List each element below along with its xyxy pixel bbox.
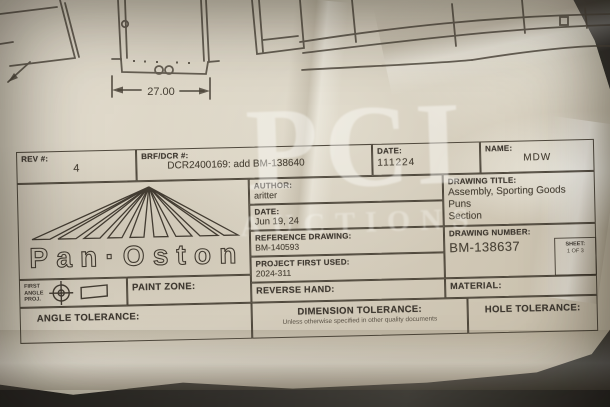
material-label: MATERIAL: bbox=[450, 278, 592, 291]
title-block: REV #: 4 BRF/DCR #: DCR2400169: add BM-1… bbox=[16, 139, 598, 344]
hole-tolerance-label: HOLE TOLERANCE: bbox=[472, 298, 592, 316]
sheet-cell: SHEET: 1 OF 3 bbox=[554, 237, 597, 276]
date-cell: DATE: 111224 bbox=[372, 141, 481, 175]
dimension-label: 27.00 bbox=[147, 86, 175, 98]
dot bbox=[156, 61, 158, 63]
rev-value: 4 bbox=[21, 162, 131, 178]
brf-dcr-cell: BRF/DCR #: DCR2400169: add BM-138640 bbox=[136, 144, 373, 181]
drawing-outline bbox=[472, 46, 610, 60]
angle-tolerance-cell: ANGLE TOLERANCE: bbox=[20, 303, 253, 344]
drawing-detail-square bbox=[560, 17, 568, 25]
hole-tolerance-cell: HOLE TOLERANCE: bbox=[467, 295, 598, 334]
date-label: DATE: bbox=[377, 145, 475, 156]
first-angle-projection-icon bbox=[45, 280, 112, 305]
drawing-outline bbox=[118, 0, 121, 60]
drawing-title-line2: Section bbox=[448, 208, 590, 223]
reverse-hand-label: REVERSE HAND: bbox=[256, 281, 440, 295]
name-cell: NAME: MDW bbox=[480, 139, 595, 174]
date-value: 111224 bbox=[377, 156, 475, 170]
first-angle-text: FIRST ANGLE PROJ. bbox=[24, 283, 44, 304]
fan-rays-icon bbox=[31, 185, 238, 240]
drawing-outline bbox=[0, 42, 13, 44]
angle-tolerance-label: ANGLE TOLERANCE: bbox=[25, 306, 247, 325]
sheet-label: SHEET: bbox=[555, 241, 595, 248]
drawing-outline bbox=[302, 60, 472, 70]
dot bbox=[176, 62, 178, 64]
drawing-outline bbox=[125, 0, 127, 58]
drawing-outline bbox=[352, 0, 356, 42]
brand-text: Pan·Oston bbox=[29, 238, 240, 274]
drawing-outline bbox=[452, 4, 456, 46]
dot bbox=[133, 60, 135, 62]
drawing-views-fragment: 27.00 bbox=[0, 0, 610, 150]
logo-cell: Pan·Oston bbox=[17, 179, 251, 280]
pan-oston-logo: Pan·Oston bbox=[21, 183, 247, 276]
drawing-outline bbox=[206, 0, 209, 62]
rev-cell: REV #: 4 bbox=[16, 149, 137, 184]
dot bbox=[188, 62, 190, 64]
dimension-tolerance-cell: DIMENSION TOLERANCE: Unless otherwise sp… bbox=[251, 298, 468, 339]
sheet-value: 1 OF 3 bbox=[555, 248, 595, 255]
paint-zone-cell: PAINT ZONE: bbox=[127, 275, 252, 306]
drawing-outline bbox=[0, 7, 57, 14]
drawing-title-line1: Assembly, Sporting Goods Puns bbox=[448, 184, 591, 211]
drawing-outline bbox=[10, 0, 75, 66]
dimension-arrow bbox=[112, 87, 123, 94]
first-angle-cell: FIRST ANGLE PROJ. bbox=[19, 278, 128, 308]
paint-zone-label: PAINT ZONE: bbox=[132, 280, 246, 294]
dimension-arrow bbox=[199, 88, 210, 95]
first-angle-line3: PROJ. bbox=[24, 297, 43, 304]
drawing-outline bbox=[259, 0, 263, 52]
dot bbox=[144, 61, 146, 63]
drawing-outline bbox=[585, 8, 587, 28]
drawing-outline bbox=[263, 36, 298, 40]
photo-of-blueprint: 27.00 REV #: 4 BRF/DCR #: DCR2400169: ad… bbox=[0, 0, 610, 407]
drawing-outline bbox=[201, 0, 204, 61]
drawing-title-cell: DRAWING TITLE: Assembly, Sporting Goods … bbox=[443, 171, 596, 226]
name-value: MDW bbox=[485, 151, 589, 165]
